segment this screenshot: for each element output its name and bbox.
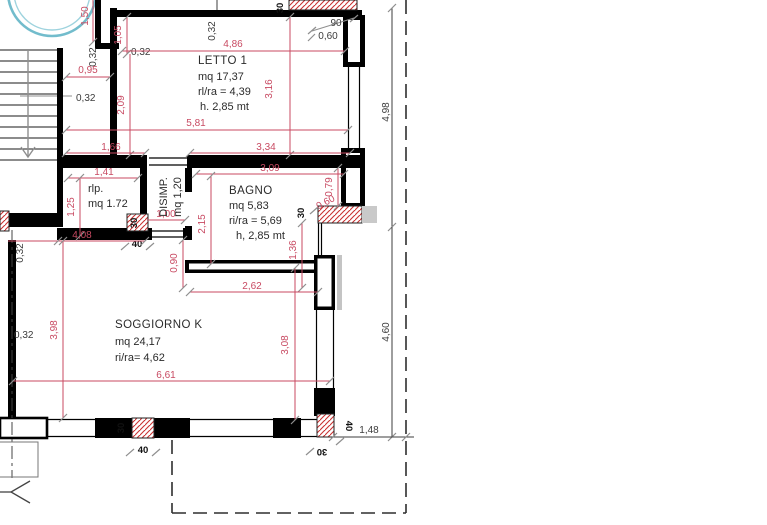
room-bagno-height: h, 2,85 mt — [236, 230, 285, 242]
room-letto1-ratio: rl/ra = 4,39 — [198, 86, 251, 98]
dim-2-15: 2,15 — [197, 172, 215, 268]
dim-3-16: 3,16 — [264, 13, 294, 159]
room-letto1-area: mq 17,37 — [198, 71, 244, 83]
dim-90-label: 90 — [330, 18, 342, 29]
dim-1-48: 1,48 — [329, 425, 414, 441]
floor-plan-canvas: 4,98 4,60 1,48 90 0,60 0,32 0,32 0,32 0,… — [0, 0, 767, 525]
pillar-bagno-right-shade — [362, 206, 377, 223]
room-rlp-name: rlp. — [88, 183, 103, 195]
pillar-b-30: 30 — [317, 446, 328, 457]
dim-2-15-label: 2,15 — [197, 214, 208, 234]
dim-1-48-label: 1,48 — [359, 425, 379, 436]
room-soggiorno-ratio: ri/ra= 4,62 — [115, 352, 165, 364]
wall-thickness-6: 0,32 — [14, 330, 34, 341]
pillar-stair — [0, 211, 9, 231]
dim-3-98: 3,98 — [49, 237, 67, 422]
dim-6-61: 6,61 — [9, 370, 334, 385]
balcony-outline — [0, 442, 38, 477]
pillar-bottom-b — [317, 414, 334, 437]
floor-plan-page: 4,98 4,60 1,48 90 0,60 0,32 0,32 0,32 0,… — [0, 0, 767, 525]
lower-arrow-icon — [0, 481, 30, 503]
room-letto1-height: h. 2,85 mt — [200, 101, 249, 113]
dim-3-34: 3,34 — [186, 142, 354, 157]
room-rlp-area: mq 1.72 — [88, 198, 128, 210]
dim-4-08-label: 4,08 — [72, 230, 92, 241]
dim-0-95: 0,95 — [62, 65, 114, 81]
room-disimp-name: DISIMP. — [158, 177, 170, 217]
wall-thickness-5: 0,32 — [15, 243, 26, 263]
pillar-a-40: 40 — [138, 445, 149, 456]
room-bagno-area: mq 5,83 — [229, 200, 269, 212]
room-soggiorno-area: mq 24,17 — [115, 336, 161, 348]
room-soggiorno: SOGGIORNO K mq 24,17 ri/ra= 4,62 — [115, 319, 202, 364]
dim-1-36: 1,36 — [288, 219, 306, 292]
room-letto1: LETTO 1 mq 17,37 rl/ra = 4,39 h. 2,85 mt — [198, 55, 251, 113]
pillar-disimp-30: 30 — [129, 218, 140, 229]
pillar-bagno-30: 30 — [296, 208, 307, 219]
wall-thickness-1: 0,32 — [88, 47, 99, 67]
dim-3-34-label: 3,34 — [256, 142, 276, 153]
dim-6-61-label: 6,61 — [156, 370, 176, 381]
dim-4-86: 4,86 — [118, 39, 349, 55]
dim-0-90-label: 0,90 — [169, 253, 180, 273]
dim-1-05-label: 1,05 — [113, 25, 124, 45]
pillar-top — [289, 0, 357, 10]
room-bagno: BAGNO mq 5,83 ri/ra = 5,69 h, 2,85 mt — [229, 185, 285, 242]
dim-5-81: 5,81 — [62, 118, 352, 134]
dim-3-08-label: 3,08 — [280, 335, 291, 355]
dim-1-41: 1,41 — [64, 167, 142, 182]
dim-1-66-label: 1,66 — [101, 142, 121, 153]
pillar-top-30: 30 — [275, 3, 286, 14]
dim-1-25-label: 1,25 — [66, 197, 77, 217]
dim-0-60-black-label: 0,60 — [318, 31, 338, 42]
dim-0-90: 0,90 — [169, 236, 187, 292]
dim-4-60: 4,60 — [381, 227, 396, 441]
dim-3-98-label: 3,98 — [49, 320, 60, 340]
wall-thickness-4: 0,32 — [207, 21, 218, 41]
wall-thickness-2: 0,32 — [131, 47, 151, 58]
dim-3-16-label: 3,16 — [264, 79, 275, 99]
dim-4-98: 4,98 — [381, 4, 396, 231]
dim-0-95-label: 0,95 — [78, 65, 98, 76]
dim-1-36-label: 1,36 — [288, 240, 299, 260]
pillar-bottom-a — [132, 418, 154, 438]
dim-4-98-label: 4,98 — [381, 102, 392, 122]
room-letto1-name: LETTO 1 — [198, 55, 247, 67]
room-disimp-area: mq 1,20 — [172, 177, 184, 217]
dim-1-50-label: 1,50 — [80, 6, 91, 26]
dim-4-60-label: 4,60 — [381, 322, 392, 342]
pillar-b-40: 40 — [343, 421, 354, 432]
dim-3-08: 3,08 — [280, 264, 299, 424]
room-soggiorno-name: SOGGIORNO K — [115, 319, 202, 331]
dim-2-09-label: 2,09 — [116, 95, 127, 115]
dim-1-41-label: 1,41 — [94, 167, 114, 178]
dim-1-66: 1,66 — [62, 142, 149, 157]
dim-2-62-label: 2,62 — [242, 281, 262, 292]
room-bagno-name: BAGNO — [229, 185, 273, 197]
stair-direction-arrow — [21, 50, 35, 157]
room-bagno-ratio: ri/ra = 5,69 — [229, 215, 282, 227]
wall-thickness-3: 0,32 — [76, 93, 96, 104]
room-rlp: rlp. mq 1.72 — [88, 183, 128, 210]
dim-4-86-label: 4,86 — [223, 39, 243, 50]
pillar-a-30: 30 — [116, 423, 127, 434]
walls — [0, 0, 365, 438]
dim-3-09-label: 3,09 — [260, 163, 280, 174]
dim-5-81-label: 5,81 — [186, 118, 206, 129]
